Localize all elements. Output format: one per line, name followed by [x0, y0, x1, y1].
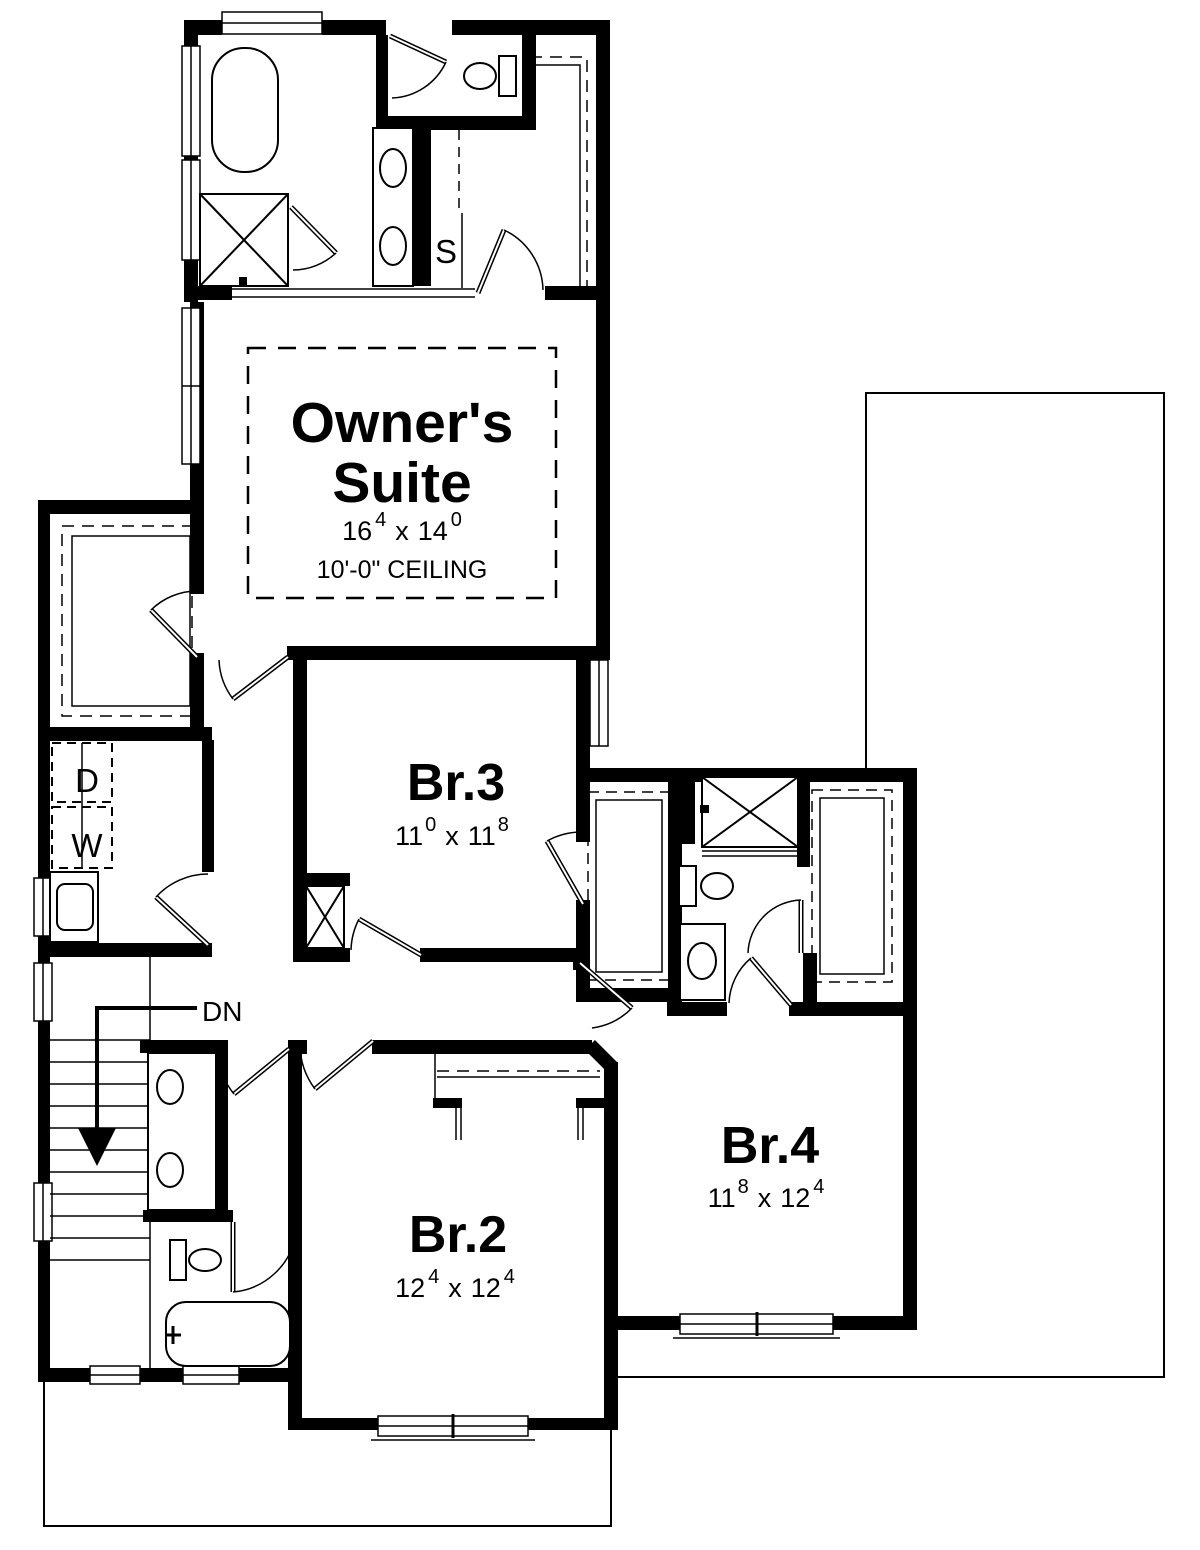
- door-swing-icon: [291, 207, 336, 270]
- door-swing-icon: [219, 657, 288, 699]
- window-icon: [590, 660, 608, 746]
- br4-label: Br.4 118x124: [708, 1117, 825, 1213]
- window-icon: [222, 12, 322, 34]
- closet-shelf-icon: [62, 526, 192, 716]
- br3-name: Br.3: [407, 754, 505, 812]
- roof-outline-right: [618, 393, 1164, 1377]
- door-swing-icon: [748, 900, 801, 953]
- window-icon: [90, 1366, 140, 1384]
- br2-label: Br.2 124x124: [395, 1206, 515, 1303]
- owners-suite-name-line2: Suite: [332, 451, 471, 515]
- window-icon: [34, 1183, 52, 1241]
- bathtub-icon: [166, 1302, 290, 1366]
- toilet-icon: [679, 866, 733, 906]
- dryer-label: D: [75, 762, 99, 799]
- door-swing-icon: [547, 832, 583, 904]
- window-icon: [182, 46, 200, 156]
- owners-suite-ceiling: 10'-0" CEILING: [317, 556, 488, 584]
- shower-icon: [200, 194, 288, 286]
- laundry-sink-icon: [50, 872, 98, 942]
- angled-wall-br2-corner: [590, 1045, 613, 1068]
- window-icon: [673, 1312, 840, 1338]
- br3-dims: 110x118: [395, 814, 509, 851]
- window-icon: [182, 308, 200, 464]
- floor-plan-page: Owner's Suite 164x140 10'-0" CEILING Br.…: [0, 0, 1200, 1550]
- door-swing-icon: [156, 874, 208, 945]
- washer-label: W: [71, 827, 103, 864]
- door-swing-icon: [478, 230, 543, 293]
- vanity-icon: [680, 924, 725, 1000]
- chase-icon: [306, 886, 344, 948]
- double-vanity-icon: [373, 128, 413, 286]
- cased-opening: [232, 289, 475, 297]
- window-icon: [182, 160, 200, 260]
- window-icon: [183, 1366, 239, 1384]
- double-vanity-icon: [148, 1053, 216, 1210]
- toilet-icon: [464, 56, 516, 96]
- door-swing-icon: [300, 1041, 373, 1089]
- door-swing-icon: [729, 958, 791, 1005]
- floor-plan-drawing: Owner's Suite 164x140 10'-0" CEILING Br.…: [0, 0, 1200, 1550]
- door-swing-icon: [351, 919, 421, 955]
- door-swing-icon: [218, 1049, 289, 1094]
- br2-name: Br.2: [409, 1206, 507, 1264]
- br4-dims: 118x124: [708, 1176, 825, 1213]
- br2-dims: 124x124: [395, 1266, 515, 1303]
- door-swing-icon: [233, 1222, 296, 1292]
- shower-icon: [700, 777, 798, 856]
- stairs-icon: [50, 957, 150, 1368]
- window-icon: [34, 963, 52, 1021]
- br4-name: Br.4: [721, 1117, 819, 1175]
- closet-shelf-icon: [459, 130, 462, 288]
- shelves-label: S: [435, 233, 457, 270]
- owners-suite-name-line1: Owner's: [291, 391, 514, 455]
- br3-label: Br.3 110x118: [395, 754, 509, 851]
- closet-shelf-icon: [812, 790, 892, 982]
- toilet-icon: [170, 1240, 221, 1280]
- stairs-down-label: DN: [202, 996, 242, 1027]
- owners-suite-label-block: Owner's Suite 164x140 10'-0" CEILING: [248, 348, 556, 598]
- closet-shelf-icon: [588, 792, 670, 980]
- roof-outline-bottom: [44, 1382, 611, 1526]
- closet-shelf-icon: [435, 1053, 600, 1140]
- soaking-tub-icon: [212, 48, 278, 172]
- door-swing-icon: [390, 36, 446, 98]
- window-icon: [371, 1414, 535, 1440]
- closet-shelf-icon: [530, 57, 587, 290]
